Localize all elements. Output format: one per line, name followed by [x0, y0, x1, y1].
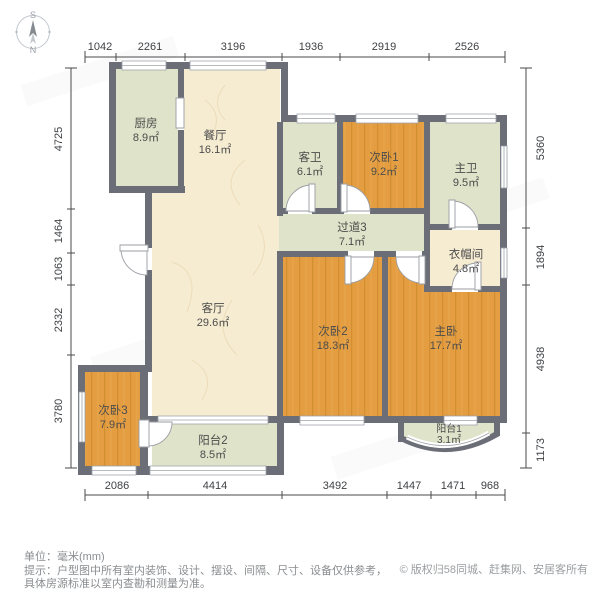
room-area-label: 7.9㎡: [100, 418, 126, 431]
dim-label: 2086: [105, 480, 129, 492]
room-area-label: 8.5㎡: [200, 448, 226, 461]
footer-tip-line2: 具体房源标准以室内查勘和测量为准。: [24, 578, 387, 592]
room-name-label: 厨房: [135, 117, 158, 130]
room-area-label: 17.7㎡: [430, 339, 462, 352]
room-area-label: 18.3㎡: [317, 339, 349, 352]
dim-label: 1464: [53, 219, 65, 243]
compass-east-dot: [48, 31, 50, 33]
room-name-label: 阳台2: [198, 433, 227, 447]
room-area-label: 16.1㎡: [199, 143, 231, 156]
room-area-label: 9.5㎡: [453, 176, 479, 189]
room-area-label: 7.1㎡: [339, 235, 365, 248]
dim-label: 1063: [53, 257, 65, 281]
compass: S N: [15, 10, 50, 55]
room-name-label: 次卧3: [98, 403, 127, 417]
room-area-label: 8.9㎡: [133, 131, 159, 144]
dim-label: 1471: [441, 480, 465, 492]
dim-label: 2332: [53, 308, 65, 332]
dim-label: 3780: [53, 399, 65, 423]
copyright-notice: © 版权归58同城、赶集网、安居客所有: [400, 561, 588, 577]
floorplan-page: S N: [0, 0, 600, 600]
room-name-label: 餐厅: [204, 128, 227, 142]
room-area-label: 9.2㎡: [371, 165, 397, 178]
dim-label: 4725: [53, 127, 65, 151]
room-name-label: 客卫: [299, 150, 322, 164]
dim-label: 2919: [372, 41, 396, 53]
room-name-label: 次卧2: [318, 324, 347, 338]
room-name-label: 衣帽间: [449, 247, 484, 261]
dim-label: 2526: [455, 41, 479, 53]
footer-notes: 单位：毫米(mm) 提示：户型图中所有室内装饰、设计、摆设、间隔、尺寸、设备仅供…: [24, 551, 387, 592]
dim-label: 1894: [535, 245, 547, 269]
dim-label: 3492: [323, 480, 347, 492]
dim-label: 4938: [535, 347, 547, 371]
floorplan-canvas: S N: [0, 0, 600, 600]
room-name-label: 客厅: [202, 301, 225, 315]
dim-label: 1042: [88, 41, 112, 53]
dim-label: 4414: [203, 480, 227, 492]
dim-label: 968: [481, 480, 499, 492]
dim-label: 1936: [299, 41, 323, 53]
dim-label: 1173: [535, 438, 547, 462]
footer-unit-line: 单位：毫米(mm): [24, 551, 387, 565]
room-name-label: 次卧1: [369, 150, 398, 164]
dim-label: 5360: [535, 136, 547, 160]
dim-label: 3196: [221, 41, 245, 53]
compass-south-label: S: [30, 10, 36, 20]
room-name-label: 主卫: [455, 162, 478, 175]
dim-label: 1447: [397, 480, 421, 492]
room-area-label: 4.8㎡: [453, 262, 479, 275]
dim-label: 2261: [138, 41, 162, 53]
room-name-label: 阳台1: [436, 422, 462, 435]
room-area-label: 3.1㎡: [437, 434, 461, 446]
room-area-label: 6.1㎡: [297, 165, 323, 178]
compass-north-label: N: [30, 45, 37, 55]
room-name-label: 过道3: [337, 220, 366, 234]
footer-tip-line1: 提示：户型图中所有室内装饰、设计、摆设、间隔、尺寸、设备仅供参考，: [24, 565, 387, 579]
room-area-label: 29.6㎡: [197, 316, 229, 329]
room-name-label: 主卧: [435, 325, 458, 338]
compass-west-dot: [15, 31, 17, 33]
